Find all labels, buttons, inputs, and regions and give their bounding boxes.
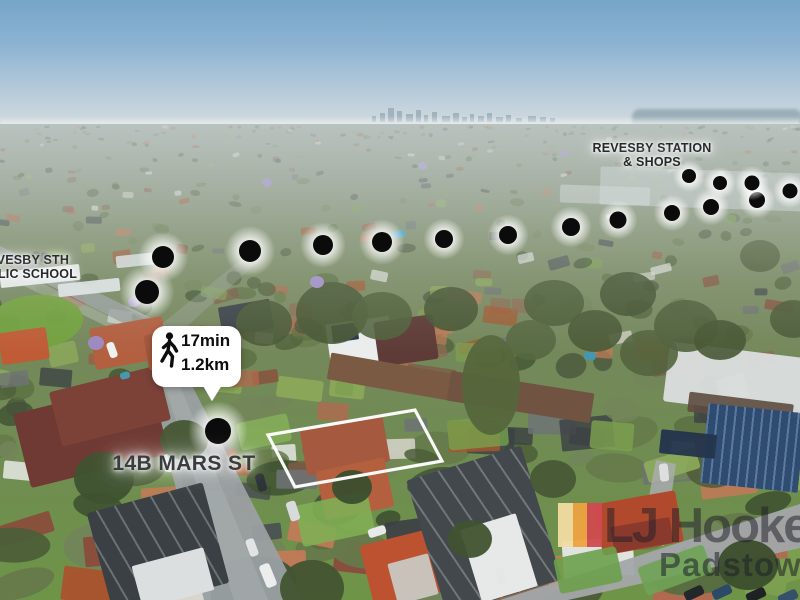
- school-label-line1: REVESBY STH: [0, 253, 105, 267]
- logo-stripe-1: [558, 503, 573, 547]
- walk-distance-value: 1.2km: [181, 355, 229, 375]
- property-boundary-outline: [268, 410, 442, 487]
- address-label: 14B MARS ST: [104, 452, 264, 476]
- station-label: REVESBY STATION & SHOPS: [592, 141, 712, 169]
- school-label: REVESBY STH PUBLIC SCHOOL: [0, 253, 105, 281]
- office-name: Padstow: [659, 546, 800, 584]
- aerial-photo: REVESBY STATION & SHOPS REVESBY STH PUBL…: [0, 0, 800, 600]
- ljhooker-logo-mark: [558, 503, 602, 547]
- walking-person-icon: [157, 331, 180, 368]
- station-label-line2: & SHOPS: [592, 155, 712, 169]
- station-label-line1: REVESBY STATION: [592, 141, 712, 155]
- school-label-line2: PUBLIC SCHOOL: [0, 267, 105, 281]
- logo-stripe-3: [587, 503, 602, 547]
- logo-stripe-2: [573, 503, 588, 547]
- walk-time-value: 17min: [181, 331, 230, 351]
- route-dots: [119, 160, 800, 461]
- callout-tail: [202, 382, 226, 402]
